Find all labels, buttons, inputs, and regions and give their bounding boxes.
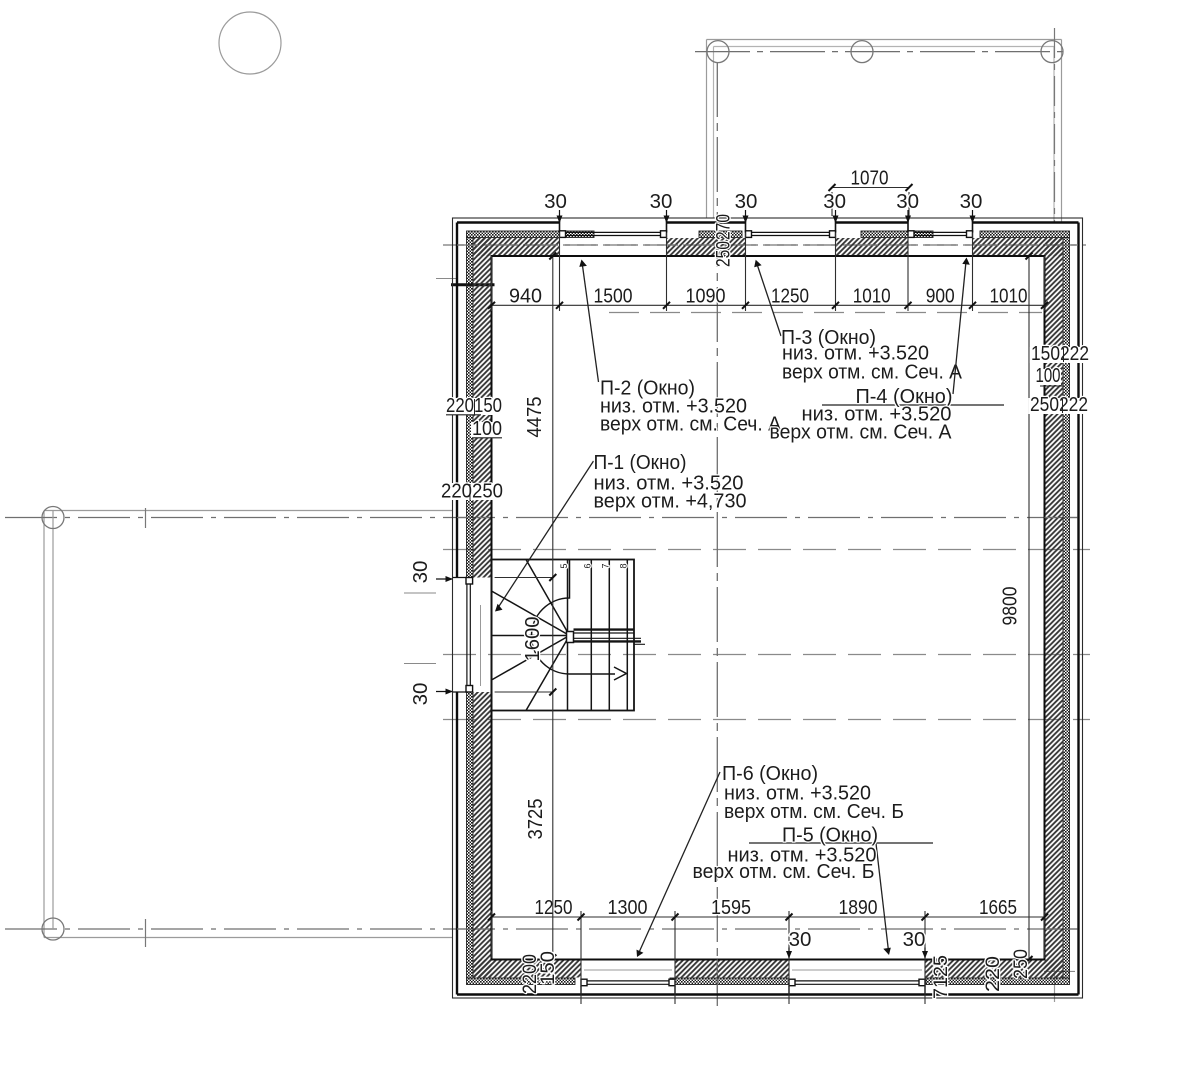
svg-text:250: 250 xyxy=(1011,949,1032,979)
svg-text:1890: 1890 xyxy=(839,896,878,919)
svg-text:9800: 9800 xyxy=(999,587,1022,626)
svg-text:220250: 220250 xyxy=(441,480,503,503)
svg-text:30: 30 xyxy=(903,928,926,951)
svg-text:30: 30 xyxy=(735,190,758,213)
svg-text:верх отм. см. Сеч. А: верх отм. см. Сеч. А xyxy=(782,361,962,384)
svg-text:верх отм. см. Сеч. Б: верх отм. см. Сеч. Б xyxy=(693,860,875,883)
svg-text:1665: 1665 xyxy=(979,896,1017,919)
svg-text:150: 150 xyxy=(538,951,559,985)
svg-text:100: 100 xyxy=(1036,364,1061,387)
svg-text:5: 5 xyxy=(559,563,569,568)
svg-text:30: 30 xyxy=(544,190,567,213)
svg-text:150222: 150222 xyxy=(1031,342,1089,365)
svg-text:верх отм. см. Сеч. А: верх отм. см. Сеч. А xyxy=(600,413,781,436)
svg-text:30: 30 xyxy=(960,190,983,213)
svg-text:3725: 3725 xyxy=(524,799,547,840)
svg-text:верх отм. см. Сеч. А: верх отм. см. Сеч. А xyxy=(770,421,952,444)
svg-text:270: 270 xyxy=(714,214,735,240)
svg-text:1010: 1010 xyxy=(853,285,891,308)
svg-text:30: 30 xyxy=(409,683,432,706)
svg-text:30: 30 xyxy=(896,190,919,213)
svg-text:1500: 1500 xyxy=(594,285,633,308)
svg-text:1090: 1090 xyxy=(686,285,726,308)
svg-text:7: 7 xyxy=(601,563,611,568)
svg-text:900: 900 xyxy=(926,285,955,308)
svg-text:250: 250 xyxy=(714,241,735,267)
svg-text:30: 30 xyxy=(789,928,812,951)
svg-text:220: 220 xyxy=(983,956,1004,992)
svg-text:1300: 1300 xyxy=(608,896,648,919)
svg-text:1600: 1600 xyxy=(521,617,544,662)
svg-text:250222: 250222 xyxy=(1030,393,1088,416)
svg-text:8: 8 xyxy=(619,563,629,568)
svg-text:1010: 1010 xyxy=(990,285,1028,308)
svg-text:100: 100 xyxy=(472,417,502,440)
svg-text:верх отм. +4,730: верх отм. +4,730 xyxy=(594,490,747,513)
svg-text:7125: 7125 xyxy=(931,955,952,999)
svg-text:30: 30 xyxy=(409,561,432,584)
svg-text:6: 6 xyxy=(583,563,593,568)
svg-text:30: 30 xyxy=(823,190,846,213)
svg-text:1250: 1250 xyxy=(771,285,809,308)
svg-text:4475: 4475 xyxy=(523,397,546,438)
svg-text:1070: 1070 xyxy=(851,167,889,190)
svg-text:940: 940 xyxy=(509,285,542,308)
svg-text:1595: 1595 xyxy=(711,896,751,919)
svg-text:верх отм. см. Сеч. Б: верх отм. см. Сеч. Б xyxy=(724,800,904,823)
svg-text:1250: 1250 xyxy=(535,896,573,919)
svg-text:30: 30 xyxy=(650,190,673,213)
